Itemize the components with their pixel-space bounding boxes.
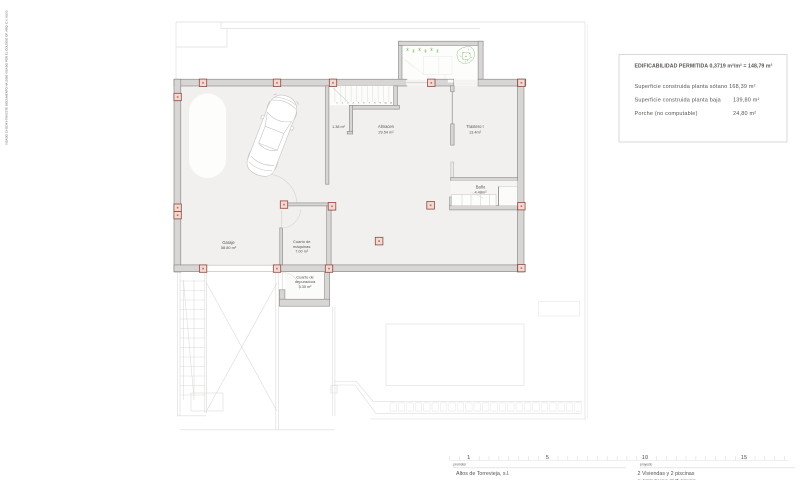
svg-text:Porche (no computable): Porche (no computable)	[635, 111, 698, 117]
svg-text:1.38 m²: 1.38 m²	[332, 125, 346, 129]
svg-text:Superficie construida planta b: Superficie construida planta baja	[635, 98, 722, 104]
svg-text:Trastero I: Trastero I	[466, 124, 483, 129]
svg-text:24,80 m²: 24,80 m²	[733, 111, 756, 117]
svg-text:VISADO 23-02343-760 ESTE DOCUM: VISADO 23-02343-760 ESTE DOCUMENTO HA SI…	[5, 10, 9, 145]
svg-text:4.48m²: 4.48m²	[474, 190, 487, 195]
svg-text:EDIFICABILIDAD PERMITIDA 0,371: EDIFICABILIDAD PERMITIDA 0,3719 m²/m² = …	[635, 64, 773, 70]
svg-text:29.54 m²: 29.54 m²	[378, 130, 394, 135]
svg-text:promotor: promotor	[454, 463, 468, 467]
svg-text:Almacen: Almacen	[378, 124, 395, 129]
svg-text:7.00 m²: 7.00 m²	[295, 250, 309, 254]
svg-text:13.4m²: 13.4m²	[469, 130, 482, 135]
svg-text:2 Viviendas y 2 piscinas: 2 Viviendas y 2 piscinas	[638, 471, 695, 477]
svg-text:58.80 m²: 58.80 m²	[221, 245, 237, 250]
svg-text:15: 15	[741, 455, 747, 461]
svg-text:proyecto: proyecto	[640, 463, 652, 467]
svg-text:Superficie construida planta s: Superficie construida planta sótano 168,…	[635, 84, 756, 90]
svg-text:máquinas: máquinas	[293, 244, 310, 249]
svg-text:depuradora: depuradora	[295, 279, 316, 284]
svg-text:10: 10	[642, 455, 648, 461]
svg-text:1: 1	[467, 455, 470, 461]
svg-text:139,80 m²: 139,80 m²	[733, 98, 760, 104]
svg-text:5: 5	[546, 455, 549, 461]
svg-text:Altos de Torrevieja, s.l.: Altos de Torrevieja, s.l.	[456, 471, 510, 477]
svg-text:3.35 m²: 3.35 m²	[299, 285, 313, 289]
